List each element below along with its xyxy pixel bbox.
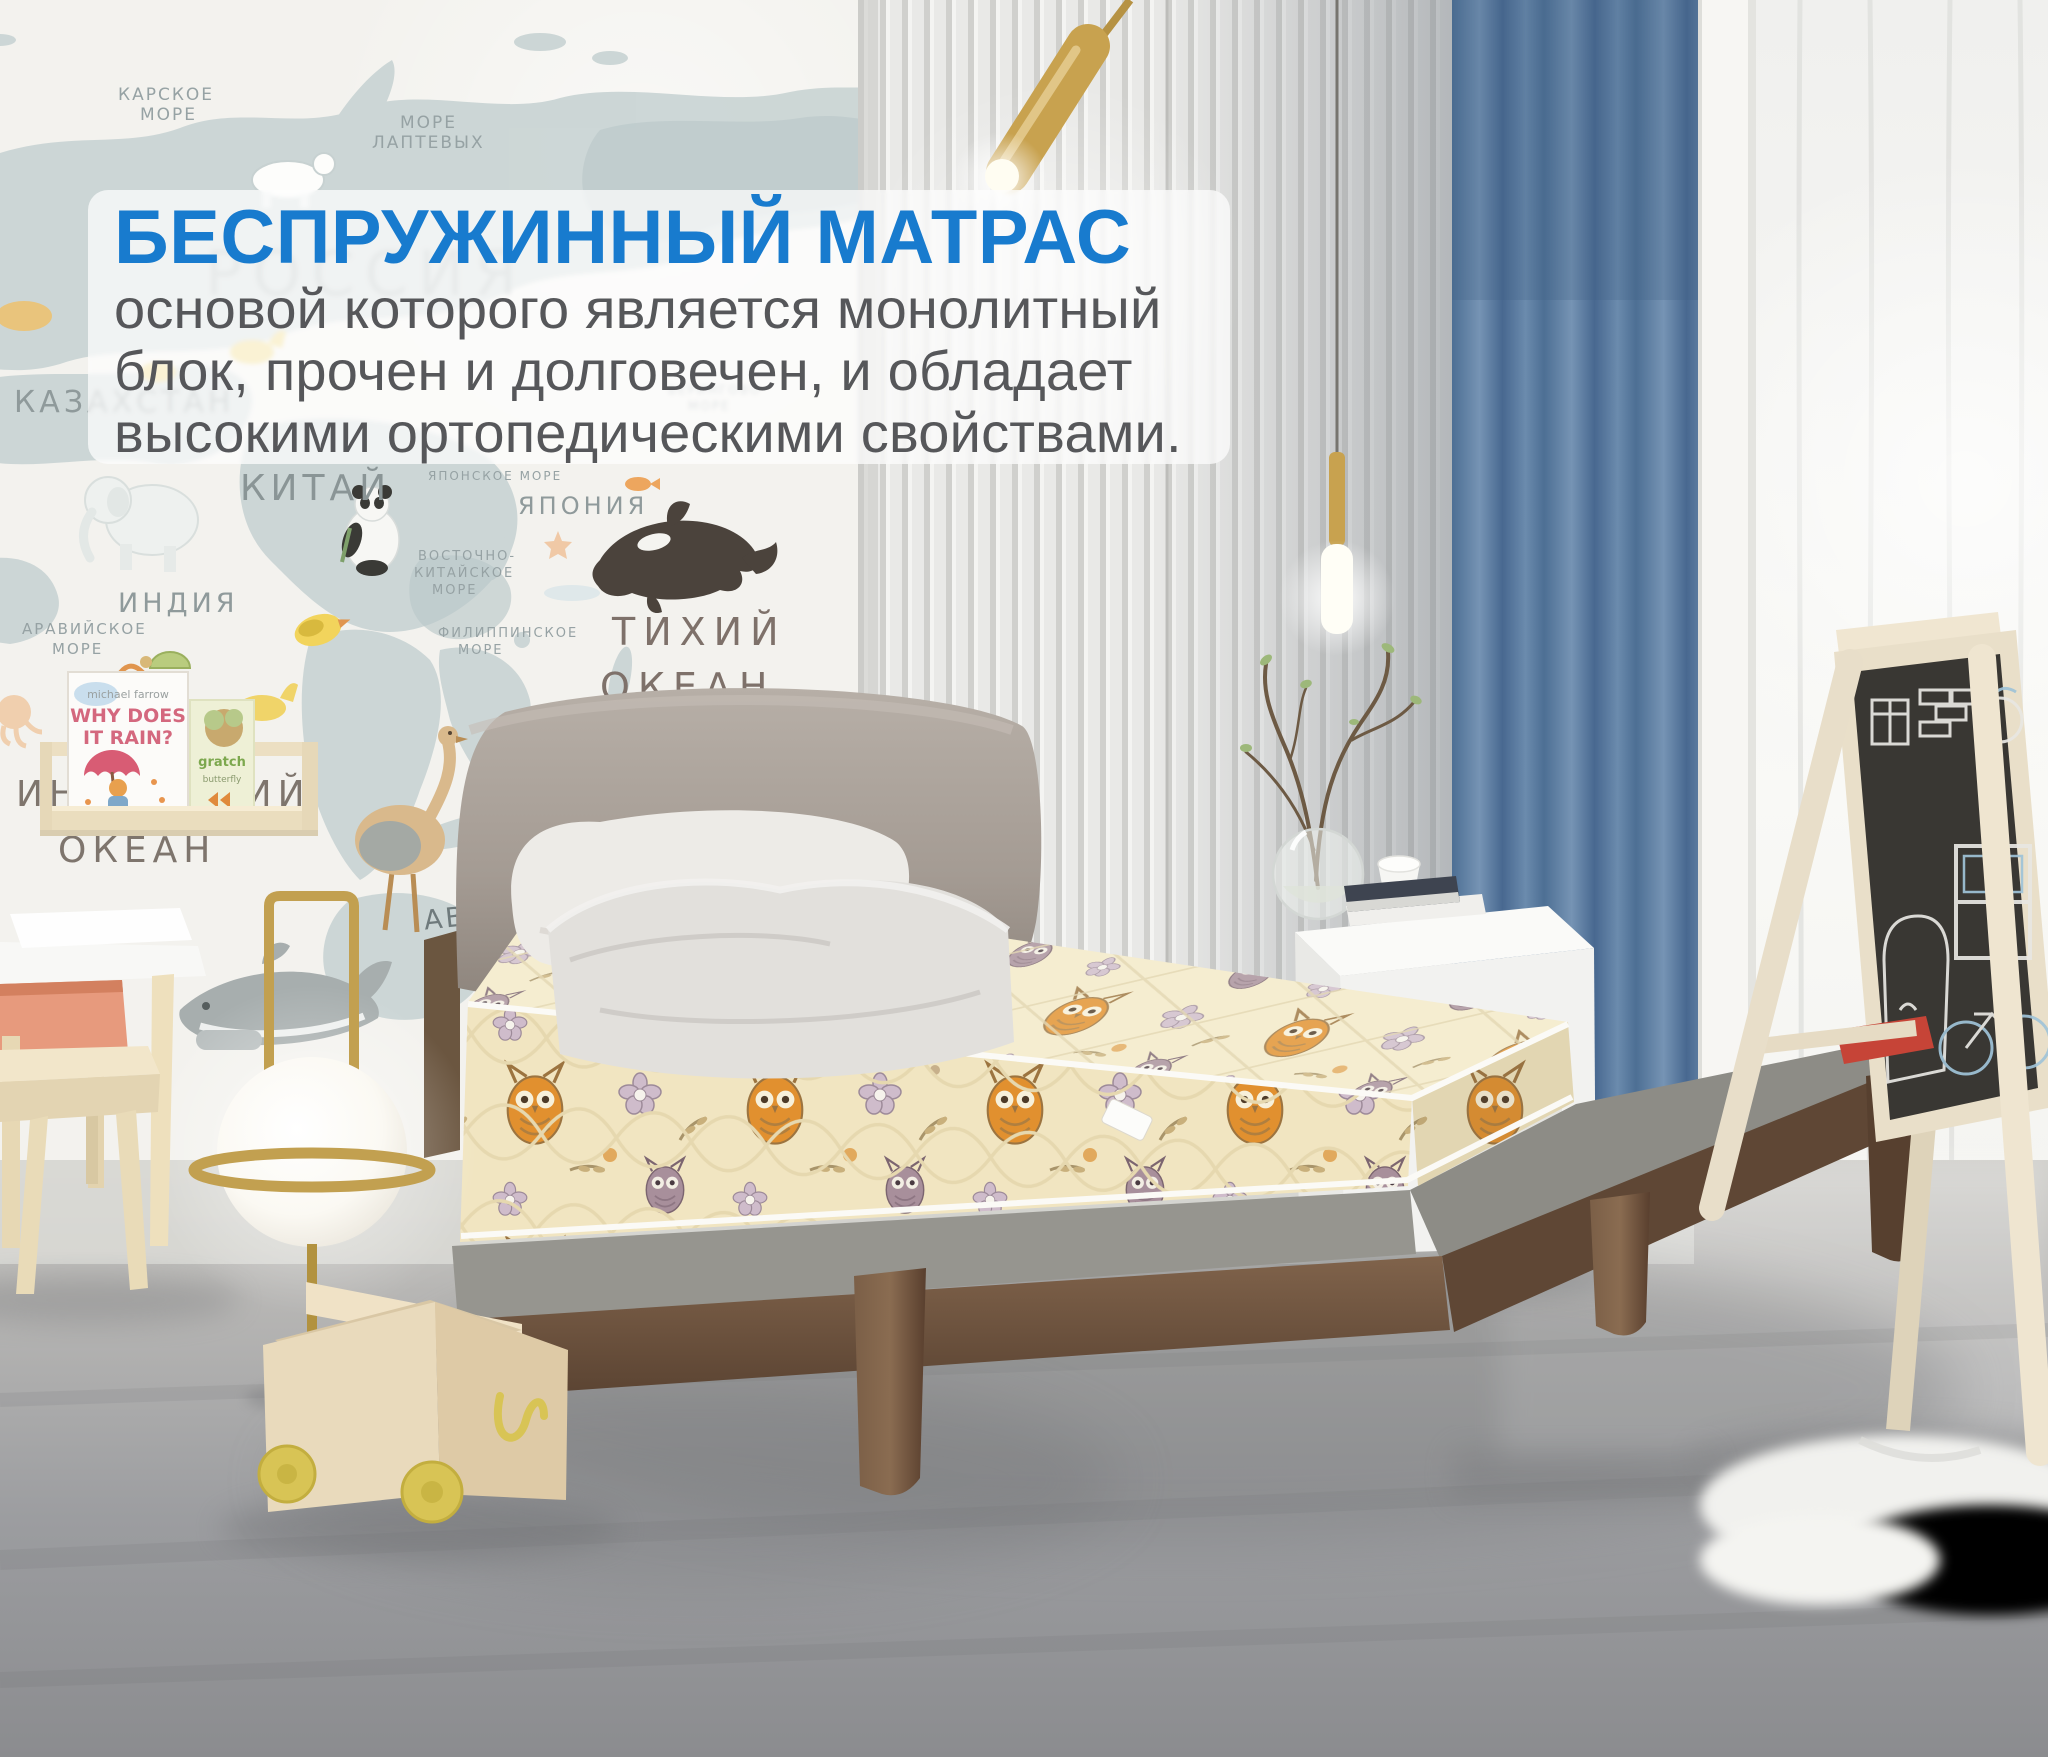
map-label: МОРЕ (432, 583, 478, 598)
map-label: КИТАЙСКОЕ (414, 565, 514, 581)
map-label: МОРЕ (52, 640, 103, 658)
map-label: ЯПОНСКОЕ МОРЕ (428, 469, 562, 483)
product-scene: КАРСКОЕ МОРЕ МОРЕ ЛАПТЕВЫХ РОССИЯ КАЗАХС… (0, 0, 2048, 1757)
promo-title: БЕСПРУЖИННЫЙ МАТРАС (114, 198, 1204, 278)
promo-text-line-3: высокими ортопедическими свойствами. (114, 402, 1204, 464)
map-label: МОРЕ (400, 113, 457, 133)
map-label-pacific-1: ТИХИЙ (611, 610, 787, 654)
map-label: ФИЛИППИНСКОЕ (438, 626, 578, 641)
book-title-line1: WHY DOES (70, 705, 186, 727)
map-label: МОРЕ (458, 643, 504, 658)
map-label: ЛАПТЕВЫХ (372, 133, 485, 153)
book-title-line2: IT RAIN? (83, 727, 173, 749)
promo-text-line-2: блок, прочен и долговечен, и обладает (114, 340, 1204, 402)
map-cloud (544, 585, 600, 601)
pendant-bulb (1321, 544, 1353, 634)
book-author: michael farrow (87, 688, 169, 701)
shelf-end-post (302, 742, 318, 832)
curtain-top-shade (1452, 0, 1698, 300)
book2-subtitle: butterfly (203, 775, 242, 785)
map-label-japan: ЯПОНИЯ (518, 492, 648, 520)
map-label: АРАВИЙСКОЕ (22, 619, 147, 638)
duvet (548, 880, 1014, 1078)
pendant-stem (1329, 452, 1345, 546)
map-label: ВОСТОЧНО- (418, 549, 516, 564)
map-label: МОРЕ (140, 105, 197, 125)
map-label: КАРСКОЕ (118, 85, 214, 105)
promo-text-line-1: основой которого является монолитный (114, 278, 1204, 340)
bed-leg-front (854, 1268, 926, 1495)
curtain-shadow (1452, 1450, 1712, 1500)
bed-leg-foot (1590, 1192, 1650, 1336)
map-label-china: КИТАЙ (240, 467, 391, 509)
promo-overlay-panel: БЕСПРУЖИННЫЙ МАТРАС основой которого явл… (88, 190, 1230, 464)
map-label-india: ИНДИЯ (118, 588, 239, 619)
picture-book-why-does-it-rain: michael farrow WHY DOES IT RAIN? (68, 672, 188, 828)
sheer-pool (1700, 1435, 2048, 1615)
spotlight-lens (985, 159, 1019, 193)
book2-title: gratch (198, 755, 246, 770)
map-label-indian-2: ОКЕАН (58, 830, 216, 871)
